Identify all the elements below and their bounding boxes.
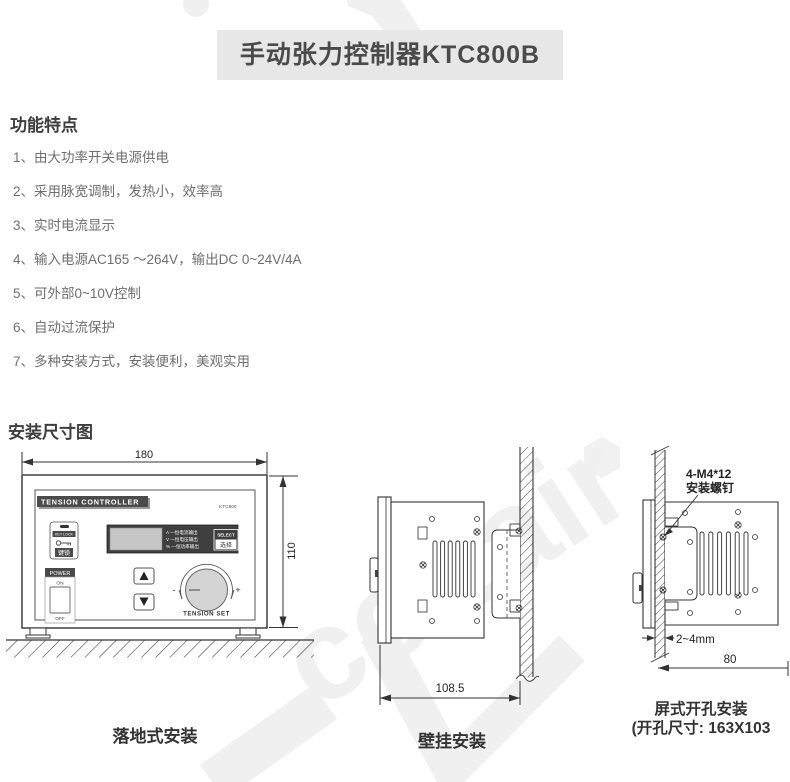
install-heading: 安装尺寸图 bbox=[8, 418, 93, 443]
power-on-label: ON bbox=[56, 581, 64, 587]
display-screen bbox=[110, 528, 162, 550]
power-module: POWER ON OFF bbox=[45, 568, 75, 623]
panel-mount-caption-line1: 屏式开孔安装 bbox=[608, 700, 790, 719]
floor-mount-drawing: 180 TENSION CONTROLLER KTC800 KEY LOCK 键… bbox=[2, 443, 320, 673]
feature-item: 5、可外部0~10V控制 bbox=[13, 277, 302, 311]
display-line3: % —恒功率输出 bbox=[166, 543, 199, 550]
panel-mount-caption: 屏式开孔安装 (开孔尺寸: 163X103 bbox=[608, 700, 790, 738]
dim-width-label: 180 bbox=[135, 449, 153, 461]
knob-shaft-notch bbox=[639, 585, 642, 591]
display-line1: A —恒电流输出 bbox=[166, 529, 198, 536]
dim-height-label: 110 bbox=[286, 542, 298, 560]
dim-depth-80-label: 80 bbox=[724, 654, 737, 666]
knob-minus-label: - bbox=[173, 585, 176, 595]
keylock-cn-label: 键锁 bbox=[58, 549, 70, 557]
dim-depth-108-5 bbox=[380, 645, 520, 705]
front-bezel bbox=[378, 497, 391, 643]
ground-hatch bbox=[6, 640, 314, 658]
page-root: ccLair 手动张力控制器KTC800B 功能特点 1、由大功率开关电源供电 … bbox=[0, 0, 790, 782]
model-label: KTC800 bbox=[219, 504, 237, 510]
feature-list: 1、由大功率开关电源供电 2、采用脉宽调制，发热小，效率高 3、实时电流显示 4… bbox=[13, 141, 302, 379]
down-button-drawing bbox=[134, 594, 154, 610]
brand-label: TENSION CONTROLLER bbox=[41, 498, 139, 507]
feature-item: 1、由大功率开关电源供电 bbox=[13, 141, 302, 175]
power-switch bbox=[50, 587, 70, 613]
feature-item: 6、自动过流保护 bbox=[13, 311, 302, 345]
dim-panel-thickness-label: 2~4mm bbox=[676, 634, 715, 646]
keylock-label: KEY LOCK bbox=[55, 533, 74, 537]
screw-note-line1: 4-M4*12 bbox=[686, 467, 732, 481]
feature-item: 3、实时电流显示 bbox=[13, 209, 302, 243]
keylock-led-icon bbox=[60, 525, 69, 528]
features-heading: 功能特点 bbox=[10, 111, 78, 136]
page-title: 手动张力控制器KTC800B bbox=[217, 30, 563, 80]
knob-plus-label: + bbox=[235, 585, 240, 595]
panel-mount-caption-line2: (开孔尺寸: 163X103 bbox=[608, 719, 790, 738]
screw-note-line2: 安装螺钉 bbox=[686, 480, 734, 495]
power-off-label: OFF bbox=[55, 616, 65, 622]
keylock-module: KEY LOCK 键锁 bbox=[50, 522, 78, 559]
knob-label: TENSION SET bbox=[183, 611, 230, 618]
controller-body bbox=[391, 502, 484, 638]
screw-icon bbox=[660, 587, 666, 593]
up-button-drawing bbox=[134, 568, 154, 584]
panel-mount-drawing: 4-M4*12 安装螺钉 2~4mm 80 bbox=[612, 440, 790, 702]
case-feet bbox=[26, 628, 260, 638]
feature-item: 7、多种安装方式，安装便利，美观实用 bbox=[13, 345, 302, 379]
power-label: POWER bbox=[50, 571, 71, 577]
front-bezel bbox=[643, 500, 655, 628]
display-module: A —恒电流输出 V —恒电压输出 % —恒功率输出 SELECT 选择 bbox=[107, 525, 238, 553]
display-line2: V —恒电压输出 bbox=[166, 536, 198, 543]
feature-item: 4、输入电源AC165 ～264V，输出DC 0~24V/4A bbox=[13, 243, 302, 277]
feature-item: 2、采用脉宽调制，发热小，效率高 bbox=[13, 175, 302, 209]
floor-mount-caption: 落地式安装 bbox=[75, 722, 235, 747]
wall-mount-drawing: 108.5 bbox=[358, 442, 544, 720]
brand-bar: TENSION CONTROLLER bbox=[37, 496, 150, 509]
mounting-bracket bbox=[492, 524, 522, 618]
select-label: SELECT bbox=[217, 533, 235, 538]
select-cn-label: 选择 bbox=[220, 541, 232, 549]
wall-mount-caption: 壁挂安装 bbox=[382, 727, 522, 752]
dim-depth-label: 108.5 bbox=[436, 683, 465, 695]
